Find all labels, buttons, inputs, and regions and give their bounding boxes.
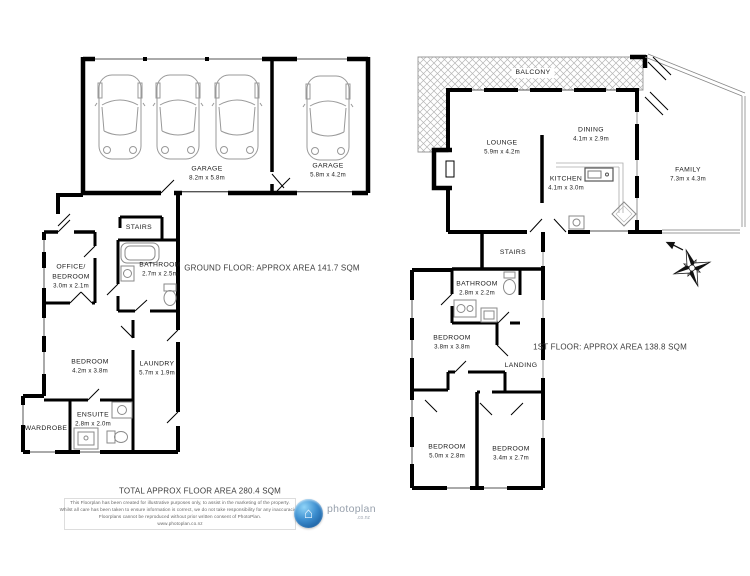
floorplan-drawing xyxy=(0,0,750,576)
ground-floor-plan xyxy=(23,57,368,452)
room-label-office-bedroom: OFFICE/ BEDROOM 3.0m x 2.1m xyxy=(52,263,90,292)
room-label-bedroom-38: BEDROOM 3.8m x 3.8m xyxy=(433,334,471,353)
logo-brand-text: photoplan xyxy=(327,503,376,515)
room-label-dining: DINING 4.1m x 2.9m xyxy=(573,126,609,145)
room-label-stairs-gf: STAIRS xyxy=(126,223,152,233)
disclaimer-line-4: www.photoplan.co.nz xyxy=(157,521,202,528)
room-label-bedroom-50: BEDROOM 5.0m x 2.8m xyxy=(428,443,466,462)
room-label-lounge: LOUNGE 5.9m x 4.2m xyxy=(484,139,520,158)
stove-icon xyxy=(569,216,584,229)
photoplan-logo: ⌂ xyxy=(294,499,323,528)
room-label-balcony: BALCONY xyxy=(512,68,555,78)
toilet-icon xyxy=(164,284,176,306)
room-label-garage-small: GARAGE 5.8m x 4.2m xyxy=(310,162,346,181)
vanity-icon-2 xyxy=(454,300,476,317)
room-label-bathroom-gf: BATHROOM 2.7m x 2.5m xyxy=(139,261,181,280)
house-icon: ⌂ xyxy=(304,505,313,522)
room-label-bedroom-gf: BEDROOM 4.2m x 3.8m xyxy=(71,358,109,377)
room-label-bedroom-34: BEDROOM 3.4m x 2.7m xyxy=(492,445,530,464)
laundry-appliance-icon xyxy=(481,308,497,322)
room-label-stairs-ff: STAIRS xyxy=(500,248,526,258)
floorplan-page: GARAGE 8.2m x 5.8m GARAGE 5.8m x 4.2m ST… xyxy=(0,0,750,576)
toilet-icon-2 xyxy=(504,272,516,295)
disclaimer-line-2: Whilst all care has been taken to ensure… xyxy=(60,507,301,514)
total-area-label: TOTAL APPROX FLOOR AREA 280.4 SQM xyxy=(119,487,281,496)
room-label-landing: LANDING xyxy=(505,361,538,371)
shower-icon xyxy=(74,428,98,449)
room-label-kitchen: KITCHEN 4.1m x 3.0m xyxy=(548,175,584,194)
room-label-laundry: LAUNDRY 5.7m x 1.9m xyxy=(139,360,175,379)
room-label-ensuite: ENSUITE 2.8m x 2.0m xyxy=(75,411,111,430)
first-floor-area-label: 1ST FLOOR: APPROX AREA 138.8 SQM xyxy=(533,343,687,352)
sink-icon xyxy=(121,266,134,281)
room-label-bathroom-ff: BATHROOM 2.8m x 2.2m xyxy=(456,280,498,299)
room-label-garage-large: GARAGE 8.2m x 5.8m xyxy=(189,165,225,184)
ground-floor-area-label: GROUND FLOOR: APPROX AREA 141.7 SQM xyxy=(184,264,360,273)
room-label-wardrobe: WARDROBE xyxy=(25,424,68,434)
room-label-family: FAMILY 7.3m x 4.3m xyxy=(670,166,706,185)
ensuite-vanity-icon xyxy=(112,402,132,418)
first-floor-plan xyxy=(412,54,745,488)
car-icons xyxy=(95,75,353,160)
island-bench xyxy=(612,202,636,226)
ensuite-toilet-icon xyxy=(107,431,128,443)
compass-rose-icon xyxy=(664,231,716,292)
disclaimer-box: This Floorplan has been created for illu… xyxy=(64,498,296,530)
disclaimer-line-3: Floorplans cannot be reproduced without … xyxy=(99,514,261,521)
logo-tld-text: .co.nz xyxy=(327,515,370,521)
disclaimer-line-1: This Floorplan has been created for illu… xyxy=(70,500,290,507)
